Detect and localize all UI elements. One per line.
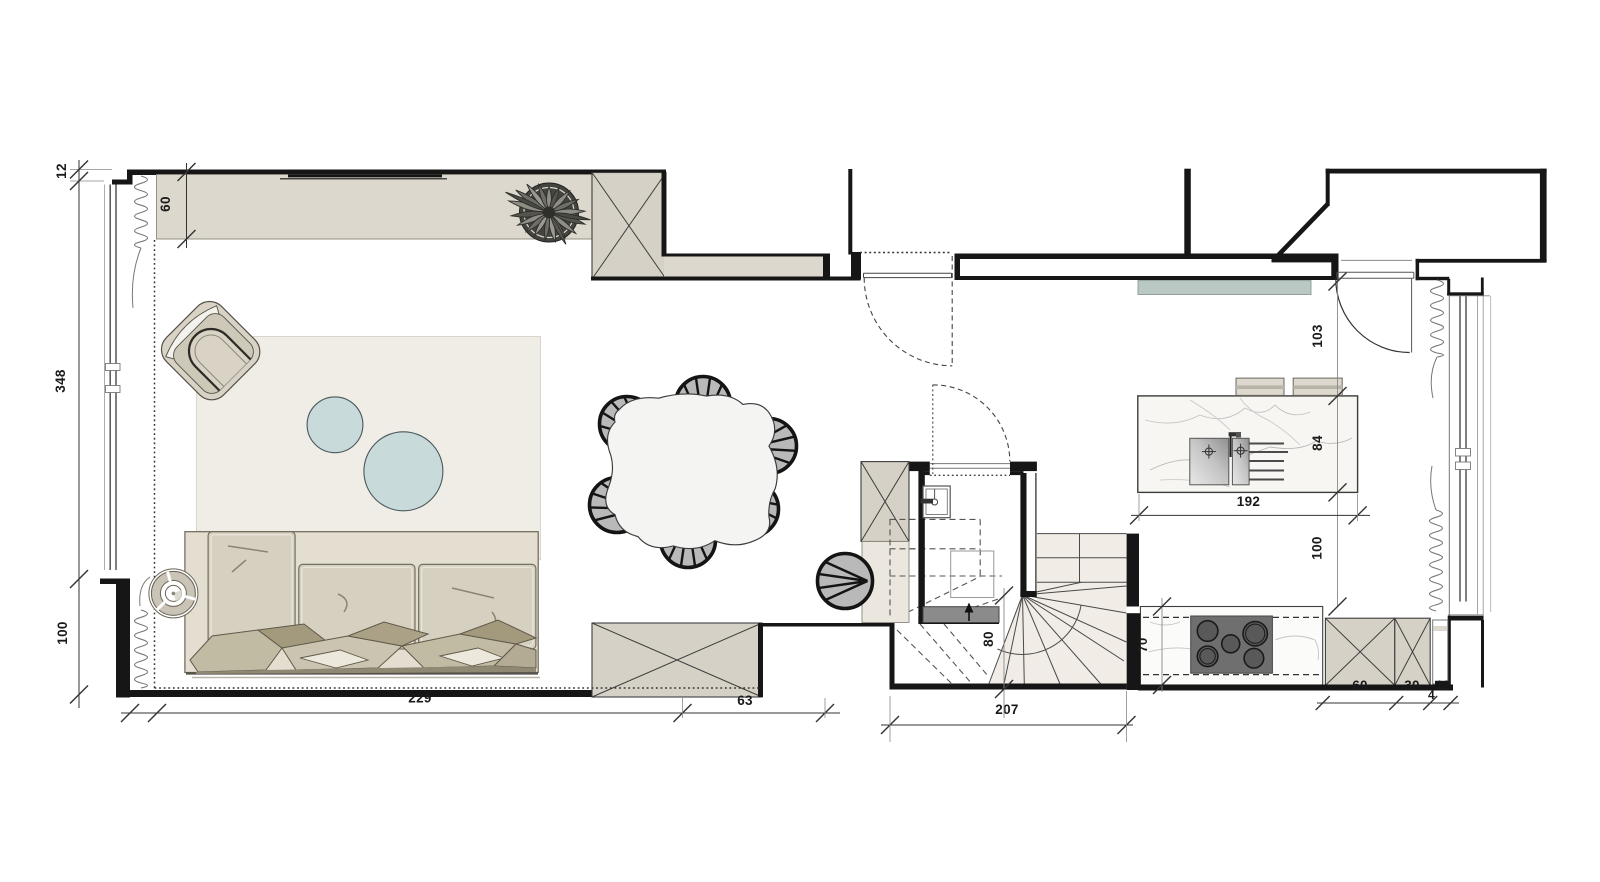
- svg-text:70: 70: [1135, 637, 1150, 652]
- svg-text:12: 12: [54, 163, 69, 179]
- svg-text:207: 207: [995, 702, 1018, 717]
- svg-text:84: 84: [1310, 435, 1325, 451]
- svg-text:100: 100: [1310, 536, 1325, 559]
- svg-text:4: 4: [1428, 688, 1435, 702]
- svg-text:348: 348: [53, 369, 68, 393]
- svg-text:30: 30: [1404, 678, 1420, 693]
- svg-text:60: 60: [1352, 678, 1368, 693]
- svg-text:103: 103: [1310, 324, 1325, 348]
- svg-text:192: 192: [1237, 494, 1260, 509]
- svg-text:100: 100: [55, 621, 70, 644]
- svg-text:80: 80: [981, 631, 996, 647]
- svg-text:60: 60: [158, 196, 173, 212]
- svg-text:63: 63: [737, 693, 753, 708]
- svg-text:229: 229: [408, 691, 431, 706]
- svg-text:12: 12: [1436, 678, 1450, 692]
